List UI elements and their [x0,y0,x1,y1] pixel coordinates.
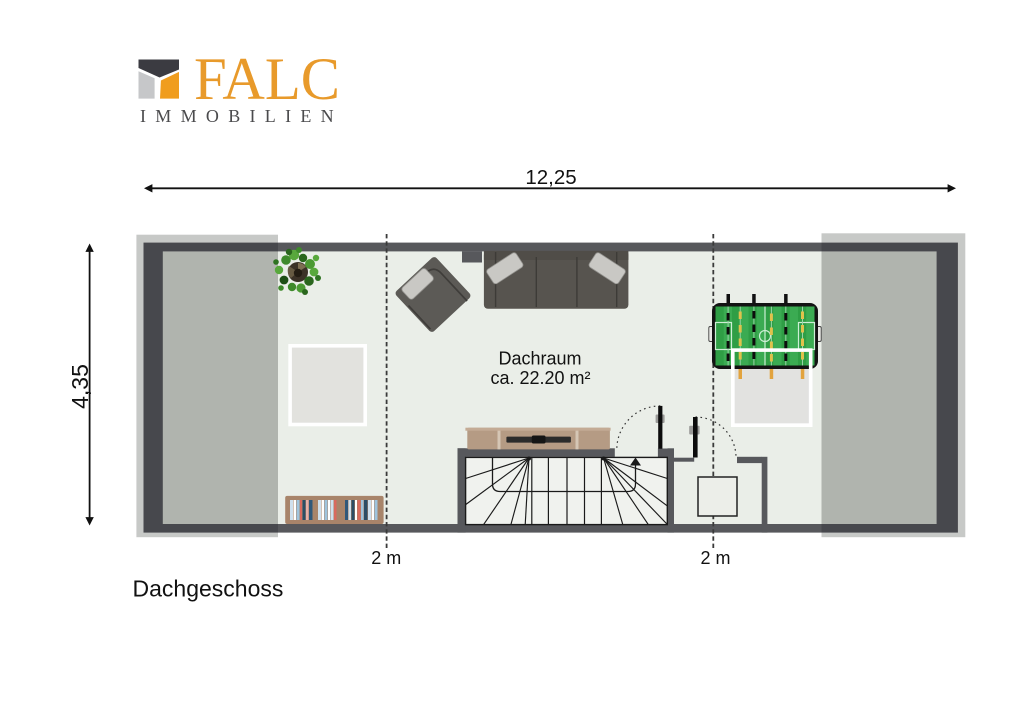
svg-text:2 m: 2 m [700,548,730,568]
svg-text:IMMOBILIEN: IMMOBILIEN [140,106,343,126]
svg-text:Dachgeschoss: Dachgeschoss [133,576,284,602]
svg-text:FALC: FALC [194,46,340,112]
svg-text:2 m: 2 m [371,548,401,568]
svg-text:ca. 22.20 m²: ca. 22.20 m² [490,368,590,388]
svg-text:Dachraum: Dachraum [498,349,581,369]
svg-text:4,35: 4,35 [67,364,93,409]
svg-text:12,25: 12,25 [525,166,576,189]
